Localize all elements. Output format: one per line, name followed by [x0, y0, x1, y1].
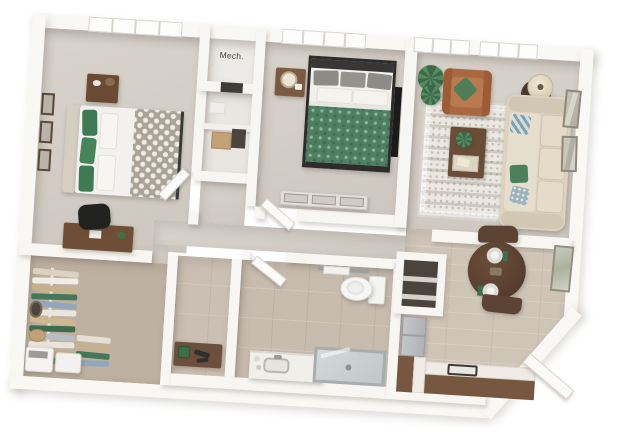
bed2-green-duvet	[305, 105, 390, 166]
office-chair	[77, 203, 111, 230]
bed2-gray-pillow	[313, 70, 338, 85]
bed2-gray-pillow	[340, 71, 366, 88]
towel	[323, 266, 349, 276]
dining-chair	[478, 225, 518, 242]
bed1-white-pillow	[99, 112, 119, 149]
sofa-blue-stripe-pillow	[509, 113, 531, 135]
hallway-floor	[153, 220, 406, 260]
dresser-drawer	[284, 193, 309, 203]
wall-frame	[41, 93, 55, 116]
storage-tan-box	[211, 131, 232, 149]
living-wall-frame	[561, 136, 578, 172]
sink-faucet	[274, 355, 282, 359]
hall-vertical-floor	[198, 181, 247, 228]
bathroom-top-wall-a	[242, 250, 251, 260]
gray-towel	[28, 350, 47, 358]
table-centerpiece	[490, 267, 502, 276]
desk-paper	[89, 230, 101, 239]
wall-frame	[39, 121, 53, 144]
kitchen-sink	[447, 364, 478, 377]
closet-entry-floor	[152, 244, 169, 264]
dresser-drawer	[340, 197, 365, 207]
bed1-green-pillow	[79, 137, 97, 165]
green-napkin	[502, 251, 508, 261]
bedroom1-nightstand	[86, 74, 120, 104]
nightstand-item	[295, 84, 302, 90]
bed1-white-pillow	[96, 154, 116, 191]
vanity-sink	[263, 357, 290, 374]
console-plant	[178, 346, 191, 359]
mech-door-slot	[220, 82, 243, 93]
clothes-item	[76, 344, 110, 351]
bed2-gray-pillow	[367, 73, 393, 91]
sofa-back-cushion	[536, 180, 565, 214]
bed1-green-pillow	[78, 165, 94, 191]
wall-frame	[37, 149, 51, 172]
dresser-drawer	[312, 195, 337, 205]
laundry-unit-2	[55, 352, 82, 374]
apartment-unit: Mech.	[9, 14, 594, 425]
storage-dark-box	[231, 129, 246, 149]
bed1-green-pillow	[82, 110, 97, 136]
bedroom1-right-wall-stub	[188, 210, 199, 225]
green-napkin	[477, 285, 483, 295]
floor-plan-render: Mech.	[0, 0, 630, 432]
storage-white-item	[209, 101, 226, 114]
sofa-green-pillow	[510, 164, 529, 183]
